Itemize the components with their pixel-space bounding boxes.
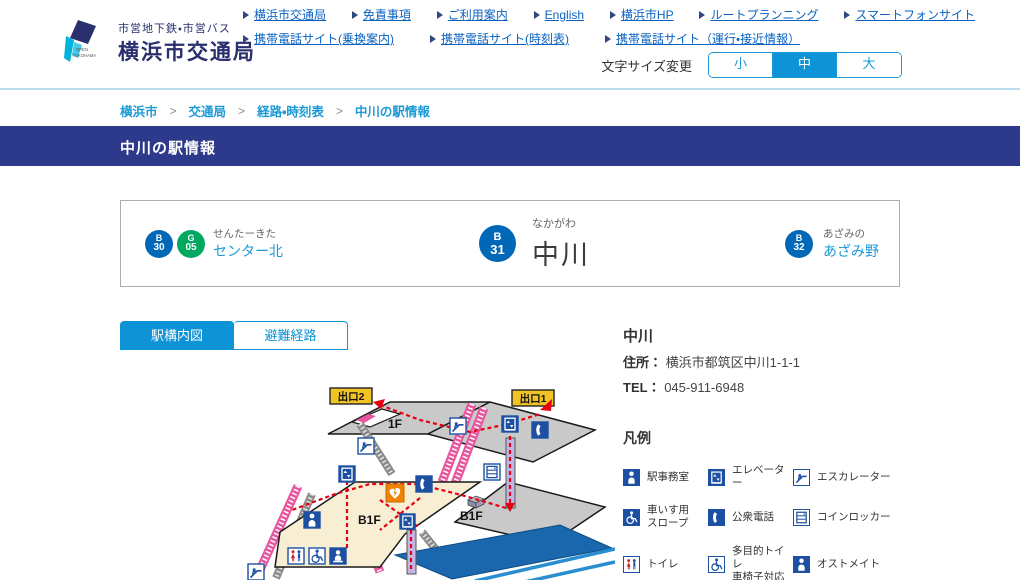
arrow-icon [437, 11, 443, 19]
station-office-icon [623, 469, 640, 486]
station-address-line: 住所： 横浜市都筑区中川1-1-1 [623, 352, 903, 371]
aed-icon [386, 484, 404, 502]
prev-station-link[interactable]: センター北 [213, 241, 283, 261]
legend-item: 多目的トイレ 車椅子対応 [708, 545, 793, 580]
wheelchair-ramp-icon [623, 509, 640, 526]
yokohama-transport-logo[interactable]: OPEN YOKOHAMA 市営地下鉄・市営バス 横浜市交通局 [58, 18, 256, 68]
elevator-icon [400, 514, 415, 529]
nav-link-mobile-timetable[interactable]: 携帯電話サイト(時刻表) [430, 30, 569, 47]
nav-link-kotsukyoku[interactable]: 横浜市交通局 [243, 6, 326, 23]
nav-link-english[interactable]: English [534, 6, 584, 23]
station-office-icon [304, 512, 320, 528]
svg-text:出口1: 出口1 [520, 392, 547, 405]
escalator-icon [793, 469, 810, 486]
accessible-toilet-icon [708, 556, 725, 573]
ostomate-icon [793, 556, 810, 573]
breadcrumb-routes-timetables[interactable]: 経路・時刻表 [257, 101, 324, 120]
breadcrumb: 横浜市 > 交通局 > 経路・時刻表 > 中川の駅情報 [0, 90, 1020, 120]
station-nav-box: B30 G05 せんたーきた センター北 B31 なかがわ 中川 B32 あざみ… [120, 200, 900, 287]
address-label: 住所： [623, 355, 662, 370]
public-phone-icon [416, 476, 432, 492]
tab-evacuation-route[interactable]: 避難経路 [234, 321, 348, 350]
line-badge-B30: B30 [145, 230, 173, 258]
font-size-changer: 文字サイズ変更 小 中 大 [601, 52, 902, 78]
breadcrumb-current-page: 中川の駅情報 [355, 101, 430, 120]
arrow-icon [844, 11, 850, 19]
prev-station-kana: せんたーきた [213, 226, 283, 241]
station-tel-line: TEL： 045-911-6948 [623, 377, 903, 396]
arrow-icon [699, 11, 705, 19]
current-station-name: 中川 [532, 233, 590, 272]
prev-station: B30 G05 せんたーきた センター北 [145, 226, 283, 261]
legend-item: オストメイト [793, 545, 903, 580]
svg-text:YOKOHAMA: YOKOHAMA [72, 53, 96, 58]
elevator-icon [708, 469, 725, 486]
legend-item: 公衆電話 [708, 504, 793, 530]
escalator-icon [358, 438, 374, 454]
baby-sheet-icon [330, 548, 346, 564]
coin-locker-icon [484, 464, 500, 480]
svg-text:出口2: 出口2 [338, 390, 365, 403]
tel-value: 045-911-6948 [664, 380, 744, 395]
public-phone-icon [708, 509, 725, 526]
floor-label-b1f-right: B1F [460, 509, 483, 523]
font-size-label: 文字サイズ変更 [601, 56, 692, 75]
breadcrumb-separator: > [336, 104, 343, 118]
line-badge-G05: G05 [177, 230, 205, 258]
elevator-icon [502, 416, 518, 432]
logo-mark-icon: OPEN YOKOHAMA [58, 18, 110, 68]
map-tabs: 駅構内図 避難経路 [120, 321, 348, 350]
breadcrumb-bar: 横浜市 > 交通局 > 経路・時刻表 > 中川の駅情報 [0, 88, 1020, 126]
page-title: 中川の駅情報 [0, 126, 1020, 158]
elevator-icon [339, 466, 355, 482]
arrow-icon [243, 35, 249, 43]
logo-subtitle: 市営地下鉄・市営バス [118, 20, 256, 36]
escalator-icon [248, 564, 264, 580]
arrow-icon [605, 35, 611, 43]
svg-text:OPEN: OPEN [76, 47, 88, 52]
nav-link-disclaimer[interactable]: 免責事項 [352, 6, 411, 23]
top-navigation: 横浜市交通局 免責事項 ご利用案内 English 横浜市HP ルートプランニン… [243, 6, 975, 47]
arrow-icon [430, 35, 436, 43]
line-badge-B31: B31 [479, 225, 516, 262]
escalator-icon [450, 418, 466, 434]
legend-item: 駅事務室 [623, 464, 708, 490]
legend-item: エレベーター [708, 464, 793, 490]
logo-text: 市営地下鉄・市営バス 横浜市交通局 [118, 20, 256, 66]
legend-item: エスカレーター [793, 464, 903, 490]
arrow-icon [610, 11, 616, 19]
nav-link-guide[interactable]: ご利用案内 [437, 6, 508, 23]
nav-link-route-planning[interactable]: ルートプランニング [699, 6, 818, 23]
legend-grid: 駅事務室 エレベーター エスカレーター 車いす用 スロープ 公衆電話 コインロッ… [623, 464, 903, 580]
next-station: B32 あざみの あざみ野 [785, 226, 879, 261]
legend-item: トイレ [623, 545, 708, 580]
toilet-icon [623, 556, 640, 573]
station-info-panel: 中川 住所： 横浜市都筑区中川1-1-1 TEL： 045-911-6948 凡… [623, 325, 903, 580]
coin-locker-icon [793, 509, 810, 526]
tab-station-map[interactable]: 駅構内図 [120, 321, 234, 350]
station-info-name: 中川 [623, 325, 903, 346]
breadcrumb-kotsukyoku[interactable]: 交通局 [189, 101, 227, 120]
font-size-small-button[interactable]: 小 [709, 53, 773, 77]
arrow-icon [243, 11, 249, 19]
breadcrumb-separator: > [238, 104, 245, 118]
next-station-kana: あざみの [823, 226, 879, 241]
title-banner: 中川の駅情報 [0, 126, 1020, 166]
exit-2-badge: 出口2 [330, 388, 372, 404]
nav-link-mobile-transfer[interactable]: 携帯電話サイト(乗換案内) [243, 30, 394, 47]
arrow-icon [352, 11, 358, 19]
nav-link-mobile-service-info[interactable]: 携帯電話サイト（運行・接近情報） [605, 30, 800, 47]
nav-link-smartphone-site[interactable]: スマートフォンサイト [844, 6, 975, 23]
floor-label-1f: 1F [388, 417, 402, 431]
line-badge-B32: B32 [785, 230, 813, 258]
legend-title: 凡例 [623, 428, 903, 448]
station-map-svg: 1F 出口2 出口1 B1F B1F [240, 382, 615, 580]
current-station: B31 なかがわ 中川 [479, 215, 590, 272]
public-phone-icon [532, 422, 548, 438]
breadcrumb-separator: > [170, 104, 177, 118]
arrow-icon [534, 11, 540, 19]
legend-item: 車いす用 スロープ [623, 504, 708, 530]
logo-title: 横浜市交通局 [118, 36, 256, 66]
next-station-link[interactable]: あざみ野 [823, 241, 879, 261]
page-header: OPEN YOKOHAMA 市営地下鉄・市営バス 横浜市交通局 横浜市交通局 免… [0, 0, 1020, 88]
floor-label-b1f-left: B1F [358, 513, 381, 527]
legend-item: コインロッカー [793, 504, 903, 530]
station-map-image: 1F 出口2 出口1 B1F B1F [240, 382, 615, 580]
font-size-large-button[interactable]: 大 [837, 53, 901, 77]
current-station-kana: なかがわ [532, 215, 590, 231]
tel-label: TEL： [623, 380, 661, 395]
font-size-medium-button[interactable]: 中 [773, 53, 837, 77]
address-value: 横浜市都筑区中川1-1-1 [666, 355, 800, 370]
toilet-icon [288, 548, 304, 564]
nav-link-city-hp[interactable]: 横浜市HP [610, 6, 674, 23]
accessible-toilet-icon [309, 548, 325, 564]
font-size-buttons: 小 中 大 [708, 52, 902, 78]
breadcrumb-yokohama-city[interactable]: 横浜市 [120, 101, 158, 120]
